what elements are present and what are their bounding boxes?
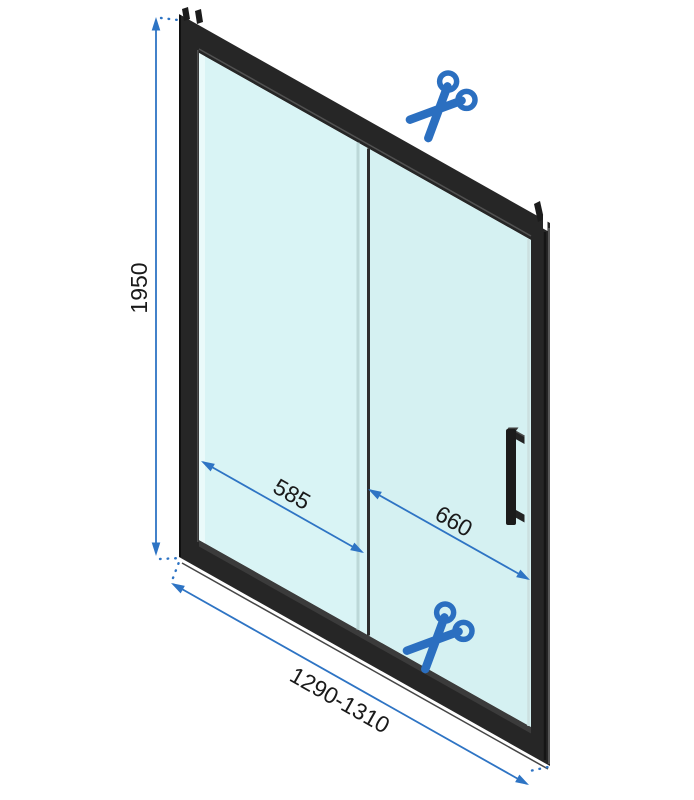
- glass-edge-highlight-left: [199, 53, 205, 543]
- arrowhead-down: [152, 543, 161, 557]
- mounting-tab-left-b: [195, 9, 203, 24]
- scissors-ring: [454, 88, 478, 112]
- height-dimension: 1950: [126, 17, 181, 559]
- glass-panel-fixed: [199, 53, 369, 636]
- scissors-blades: [410, 84, 464, 138]
- shower-door-diagram: 1950 585 660 1290-1310: [0, 0, 694, 800]
- height-dimension-label: 1950: [126, 262, 152, 313]
- mounting-notch-right: [543, 215, 548, 231]
- extension-line-bottom: [160, 558, 181, 559]
- arrowhead-left: [169, 579, 185, 593]
- scissors-ring: [436, 69, 460, 93]
- arrowhead-right: [515, 775, 531, 789]
- handle-bar: [506, 429, 516, 525]
- scissors-icon-top: [404, 69, 479, 144]
- extension-line-top: [161, 18, 178, 20]
- extension-line-left: [173, 562, 179, 578]
- arrowhead-up: [152, 17, 161, 31]
- diagram-root: { "diagram": { "type": "shower-door-tech…: [0, 0, 694, 800]
